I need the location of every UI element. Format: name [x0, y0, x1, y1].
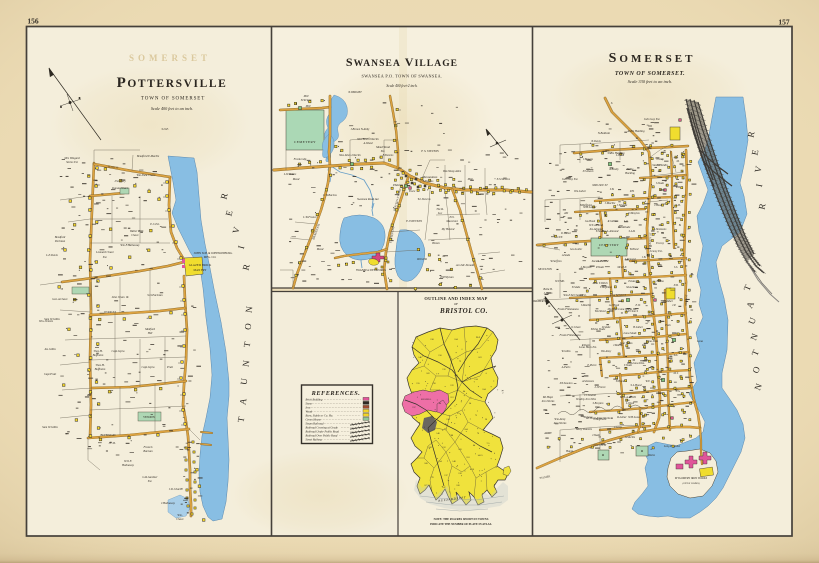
- svg-text:PALMER ST: PALMER ST: [532, 299, 548, 303]
- svg-text:SWANSEA DYE WORKS: SWANSEA DYE WORKS: [356, 269, 387, 272]
- svg-text:E.W.: E.W.: [635, 304, 641, 307]
- svg-text:14-15: 14-15: [477, 455, 483, 457]
- svg-text:L.E.Davis: L.E.Davis: [45, 253, 58, 257]
- svg-text:N.Slade: N.Slade: [571, 286, 581, 289]
- svg-text:SWANSEA: SWANSEA: [421, 398, 432, 401]
- svg-text:Chace: Chace: [176, 517, 184, 521]
- svg-text:J.Slade: J.Slade: [592, 434, 601, 437]
- svg-text:MAN FRY: MAN FRY: [194, 268, 208, 272]
- svg-text:AW: AW: [563, 211, 569, 215]
- svg-text:L.Simmons: L.Simmons: [653, 227, 668, 231]
- svg-text:J.Hood: J.Hood: [654, 204, 662, 207]
- svg-text:My Hctend: My Hctend: [441, 227, 455, 231]
- svg-text:Hanta.: Hanta.: [565, 449, 574, 453]
- svg-text:S.Brayton: S.Brayton: [593, 402, 604, 405]
- svg-text:P.H.: P.H.: [629, 190, 635, 193]
- svg-text:Wm.F.Hathaway: Wm.F.Hathaway: [120, 243, 140, 247]
- svg-text:P.Martin: P.Martin: [392, 183, 404, 187]
- svg-text:L.Wood: L.Wood: [625, 402, 635, 405]
- svg-text:INDICATE THE NUMBER OF PLATE I: INDICATE THE NUMBER OF PLATE IN ATLAS.: [430, 523, 492, 526]
- svg-text:MOULTON: MOULTON: [537, 267, 553, 271]
- svg-text:Gen.A.Chace: Gen.A.Chace: [52, 297, 68, 301]
- svg-text:O.Chace: O.Chace: [571, 326, 581, 329]
- svg-text:B.Buffinton: B.Buffinton: [580, 204, 593, 207]
- svg-text:Luna Palo: Luna Palo: [645, 339, 659, 343]
- svg-text:122: 122: [450, 385, 453, 387]
- svg-text:A.Marble: A.Marble: [624, 436, 636, 439]
- svg-text:Swansea Road Ave: Swansea Road Ave: [357, 197, 380, 201]
- svg-text:A.G.Mc.Nonald: A.G.Mc.Nonald: [455, 263, 475, 267]
- svg-text:Wm.Shea Chace: Wm.Shea Chace: [137, 173, 157, 177]
- svg-text:Hathaway: Hathaway: [121, 463, 135, 467]
- svg-text:R.Luther: R.Luther: [616, 416, 627, 419]
- svg-text:162: 162: [426, 373, 429, 375]
- svg-text:Scale 400 feet to an inch.: Scale 400 feet to an inch.: [151, 106, 193, 111]
- svg-text:72: 72: [459, 361, 461, 363]
- svg-text:A.Wood: A.Wood: [363, 141, 374, 145]
- svg-text:S.Marble: S.Marble: [581, 304, 592, 307]
- svg-text:Capt.Jepra: Capt.Jepra: [142, 365, 155, 369]
- svg-text:M.: M.: [676, 160, 680, 163]
- svg-text:H.Luther: H.Luther: [632, 326, 644, 329]
- svg-text:CEMETERY: CEMETERY: [294, 140, 316, 144]
- svg-text:Iron Works: Iron Works: [553, 421, 568, 425]
- svg-text:Wm.E.M.Chace Est.: Wm.E.M.Chace Est.: [563, 293, 587, 297]
- svg-text:Scale 400 feet-2 inch.: Scale 400 feet-2 inch.: [386, 84, 417, 88]
- svg-text:John Gay Est.: John Gay Est.: [644, 117, 661, 121]
- svg-text:SOMERSET: SOMERSET: [609, 51, 696, 66]
- svg-text:Chace: Chace: [131, 233, 139, 237]
- svg-text:Abbie Harding: Abbie Harding: [626, 129, 645, 133]
- svg-text:N.B.: N.B.: [673, 284, 679, 287]
- svg-text:N.WRIGHT: N.WRIGHT: [347, 90, 362, 94]
- svg-text:W.T.Mil.: W.T.Mil.: [555, 279, 565, 283]
- svg-text:L.P.Church: L.P.Church: [625, 310, 639, 313]
- svg-text:Estate: Estate: [627, 279, 636, 283]
- svg-text:Bo.L.A.DAVO: Bo.L.A.DAVO: [620, 395, 637, 399]
- svg-text:T.Buffinton: T.Buffinton: [600, 286, 613, 289]
- svg-text:Frank Gdp: Frank Gdp: [293, 157, 307, 161]
- svg-text:141: 141: [458, 449, 461, 451]
- svg-text:J.Gray Est.: J.Gray Est.: [649, 249, 662, 253]
- svg-text:A.Braley: A.Braley: [608, 168, 619, 171]
- svg-text:S.Slade: S.Slade: [656, 182, 665, 185]
- svg-text:SOMERSET: SOMERSET: [129, 53, 211, 63]
- svg-text:J.Brown N.Abby: J.Brown N.Abby: [351, 127, 371, 131]
- svg-text:156: 156: [27, 17, 39, 26]
- svg-text:S.O.P.: S.O.P.: [161, 127, 168, 131]
- svg-text:+ E.S.Stevens: + E.S.Stevens: [494, 177, 511, 181]
- svg-text:J.Almond: J.Almond: [625, 257, 637, 261]
- svg-text:S.: S.: [611, 101, 613, 105]
- svg-text:L.W.France: L.W.France: [302, 215, 317, 219]
- svg-text:A.J.Hood: A.J.Hood: [608, 304, 620, 307]
- svg-text:T.Slade: T.Slade: [624, 364, 633, 367]
- svg-text:Jas.Gibbs: Jas.Gibbs: [44, 347, 56, 351]
- svg-text:M'TGOMERY IRON WORKS: M'TGOMERY IRON WORKS: [675, 477, 708, 480]
- svg-text:GLAZED BRICK: GLAZED BRICK: [189, 263, 212, 267]
- svg-text:Parintan: Parintan: [54, 239, 66, 243]
- svg-text:J.Marble: J.Marble: [613, 344, 624, 347]
- svg-text:N.Hood: N.Hood: [615, 380, 625, 383]
- svg-text:A.L.: A.L.: [673, 354, 679, 357]
- svg-text:John Oram: John Oram: [111, 295, 124, 299]
- svg-text:Macaront: Macaront: [445, 219, 457, 223]
- svg-text:Luc: Luc: [437, 211, 443, 215]
- svg-text:F. S. STEVENS: F. S. STEVENS: [420, 149, 439, 153]
- svg-text:Capt.Pratt: Capt.Pratt: [44, 372, 56, 376]
- svg-text:John Gay Est.: John Gay Est.: [562, 177, 579, 181]
- svg-text:Lina M.Welch: Lina M.Welch: [609, 293, 627, 297]
- svg-text:Jas.Hood: Jas.Hood: [585, 220, 596, 223]
- svg-text:Mrs.E.P.: Mrs.E.P.: [616, 266, 627, 269]
- svg-text:Stock Hardin: Stock Hardin: [652, 163, 668, 167]
- svg-text:D.Brayton: D.Brayton: [627, 212, 640, 215]
- svg-text:Mead: Mead: [292, 177, 300, 181]
- svg-text:W.E.: W.E.: [646, 380, 651, 383]
- svg-text:R.Davis: R.Davis: [581, 344, 591, 347]
- svg-text:Scale 330 feet to an inch.: Scale 330 feet to an inch.: [628, 79, 672, 84]
- svg-text:Handslade: Handslade: [617, 225, 631, 229]
- svg-text:TOWN OF SOMERSET.: TOWN OF SOMERSET.: [615, 71, 685, 77]
- svg-text:N.Davis: N.Davis: [590, 139, 601, 143]
- svg-text:N.Wright: N.Wright: [300, 98, 312, 102]
- svg-text:S.S.: S.S.: [674, 266, 678, 269]
- svg-text:LEE: LEE: [556, 235, 562, 239]
- svg-text:J.B.: J.B.: [642, 256, 647, 259]
- svg-text:Haven: Haven: [431, 241, 440, 245]
- svg-text:OUTLINE AND INDEX MAP: OUTLINE AND INDEX MAP: [424, 296, 487, 301]
- svg-text:Was Allen Libertin: Was Allen Libertin: [339, 153, 361, 157]
- svg-text:Wm.Almy: Wm.Almy: [601, 350, 612, 353]
- svg-text:J.P.: J.P.: [672, 304, 676, 307]
- svg-text:W.Hood: W.Hood: [630, 248, 639, 251]
- svg-text:8-9: 8-9: [479, 357, 482, 359]
- svg-text:S.L.Hood: S.L.Hood: [631, 383, 642, 387]
- svg-text:N.S.Davis: N.S.Davis: [582, 170, 594, 173]
- svg-text:J.C.B.: J.C.B.: [108, 441, 115, 445]
- svg-text:Mill: Mill: [305, 104, 311, 108]
- svg-text:W.Soffron: W.Soffron: [550, 259, 562, 263]
- svg-text:Luna Slade: Luna Slade: [622, 331, 637, 335]
- svg-text:CEMETERY: CEMETERY: [599, 243, 619, 247]
- svg-text:J.Buffinton: J.Buffinton: [594, 417, 607, 421]
- svg-text:F.Stevens: F.Stevens: [422, 179, 435, 183]
- svg-text:P.Slade: P.Slade: [595, 266, 605, 269]
- svg-text:Est.: Est.: [147, 479, 153, 483]
- svg-text:Palo: Palo: [664, 323, 671, 327]
- svg-text:Stores Est: Stores Est: [66, 160, 78, 164]
- svg-text:112: 112: [450, 397, 453, 399]
- svg-text:Sam W.Gibbs: Sam W.Gibbs: [42, 425, 58, 429]
- svg-text:157: 157: [778, 18, 790, 27]
- svg-text:F.Stevens: F.Stevens: [382, 153, 395, 157]
- svg-text:M.T.: M.T.: [673, 372, 679, 375]
- svg-text:Was Wasp Allen: Was Wasp Allen: [443, 169, 462, 173]
- svg-text:E.C.Est.: E.C.Est.: [149, 222, 160, 226]
- svg-text:POTTERSVILLE: POTTERSVILLE: [117, 75, 228, 91]
- svg-text:Harding: Harding: [624, 171, 635, 175]
- svg-text:Trace: Trace: [409, 189, 416, 193]
- svg-text:D.Slade: D.Slade: [601, 326, 611, 329]
- svg-text:L.W.Barlow: L.W.Barlow: [322, 193, 337, 197]
- svg-text:SWANSEA P.O. TOWN OF SWANSEA.: SWANSEA P.O. TOWN OF SWANSEA.: [362, 74, 443, 79]
- svg-text:N.Baldwin: N.Baldwin: [597, 131, 611, 135]
- svg-text:WOOD ST: WOOD ST: [104, 311, 117, 314]
- svg-text:MFG. CO.: MFG. CO.: [204, 255, 217, 259]
- svg-text:A.Simmons: A.Simmons: [581, 380, 594, 383]
- svg-text:BRISTOL CO.: BRISTOL CO.: [439, 307, 488, 315]
- svg-text:W.Gibbs: W.Gibbs: [561, 350, 570, 353]
- svg-text:OF: OF: [454, 302, 458, 306]
- svg-text:Leonard Chace: Leonard Chace: [95, 250, 115, 254]
- svg-text:J.Gray: J.Gray: [614, 425, 623, 429]
- svg-text:Wm.Luther: Wm.Luther: [574, 190, 587, 193]
- svg-text:Pratt: Pratt: [166, 365, 173, 369]
- svg-text:MID DLE ST: MID DLE ST: [591, 183, 608, 187]
- svg-text:L.M.: L.M.: [674, 204, 680, 207]
- svg-text:Geo.Luther: Geo.Luther: [570, 248, 583, 251]
- svg-text:W.H.Luna: W.H.Luna: [628, 415, 640, 419]
- svg-text:NOTE: THE FIGURES SHOWN IN TOW: NOTE: THE FIGURES SHOWN IN TOWNS: [434, 518, 489, 521]
- svg-text:J.Hathaway: J.Hathaway: [161, 501, 176, 505]
- svg-text:E.Gray: E.Gray: [655, 242, 665, 245]
- svg-text:Frank Flimmauna: Frank Flimmauna: [556, 307, 579, 311]
- svg-text:Iron Works: Iron Works: [541, 399, 556, 403]
- svg-text:98-9: 98-9: [476, 337, 480, 339]
- svg-text:B.: B.: [679, 223, 682, 227]
- svg-text:ROGER: ROGER: [416, 257, 427, 261]
- svg-text:L.Hood: L.Hood: [615, 154, 625, 157]
- svg-text:132: 132: [442, 369, 445, 371]
- svg-text:Mead: Mead: [316, 247, 324, 251]
- svg-text:Bradford E.Marble: Bradford E.Marble: [137, 154, 160, 158]
- svg-text:S.A.B.: S.A.B.: [629, 230, 636, 233]
- svg-text:A.Paris: A.Paris: [561, 365, 572, 369]
- svg-text:Long Pond Rd.: Long Pond Rd.: [663, 445, 681, 448]
- svg-text:P.S.Sawton: P.S.Sawton: [559, 381, 573, 385]
- svg-text:Est.: Est.: [102, 255, 108, 259]
- svg-text:VENOINS: VENOINS: [143, 416, 155, 419]
- svg-text:S.B.: S.B.: [610, 188, 615, 191]
- svg-text:Wm.Wood: Wm.Wood: [595, 310, 607, 313]
- svg-text:E.Slade: E.Slade: [595, 230, 605, 233]
- svg-text:P.B.: P.B.: [641, 344, 647, 347]
- svg-text:P.Chace: P.Chace: [583, 416, 594, 419]
- svg-text:Y.L.Stevens: Y.L.Stevens: [417, 197, 431, 201]
- svg-text:BUFFINTON: BUFFINTON: [100, 434, 115, 437]
- svg-text:Hill: Hill: [147, 331, 153, 335]
- svg-text:REFERENCES.: REFERENCES.: [311, 390, 361, 397]
- svg-text:A.Slade: A.Slade: [561, 254, 571, 257]
- svg-text:J.D.Charn: J.D.Charn: [169, 487, 182, 491]
- svg-text:Frank Flimmauna: Frank Flimmauna: [558, 333, 581, 337]
- svg-text:ARMY: ARMY: [543, 431, 552, 435]
- svg-text:152: 152: [442, 447, 445, 449]
- svg-text:Luna: Luna: [696, 339, 703, 343]
- svg-text:S.O.Parintan: S.O.Parintan: [147, 293, 163, 297]
- svg-text:Barman: Barman: [143, 449, 153, 453]
- svg-text:(STOVE WORKS): (STOVE WORKS): [682, 482, 699, 485]
- svg-text:Wm.J.Davis: Wm.J.Davis: [39, 319, 54, 323]
- svg-text:Buffinton: Buffinton: [95, 367, 106, 371]
- svg-text:J.Marble: J.Marble: [605, 201, 616, 205]
- svg-text:Capt.Jepra: Capt.Jepra: [112, 349, 125, 353]
- svg-text:F.J.STEVENS: F.J.STEVENS: [405, 219, 422, 223]
- svg-text:TOWN OF SOMERSET: TOWN OF SOMERSET: [141, 97, 205, 102]
- svg-text:Street Railway: Street Railway: [306, 438, 324, 442]
- svg-text:W.Almy Iron Wks: W.Almy Iron Wks: [576, 397, 597, 401]
